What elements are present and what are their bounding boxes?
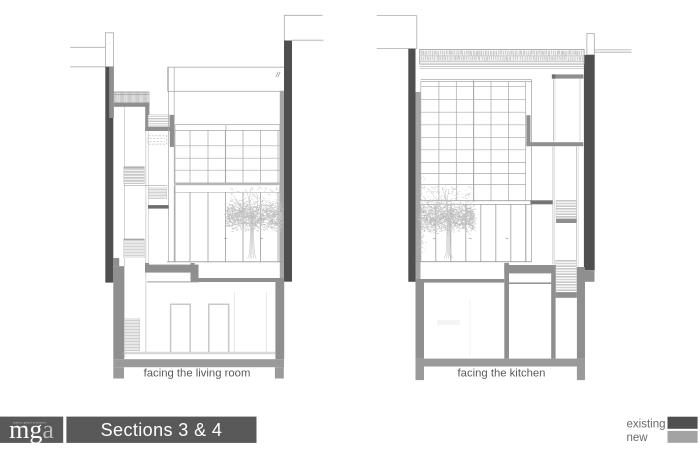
svg-text:mga: mga	[9, 415, 54, 444]
svg-text:Sections 3 & 4: Sections 3 & 4	[101, 420, 223, 440]
svg-text:new: new	[627, 432, 649, 444]
svg-text:facing the kitchen: facing the kitchen	[458, 368, 546, 380]
svg-text:facing the living room: facing the living room	[144, 368, 251, 380]
svg-text:existing: existing	[627, 418, 666, 430]
